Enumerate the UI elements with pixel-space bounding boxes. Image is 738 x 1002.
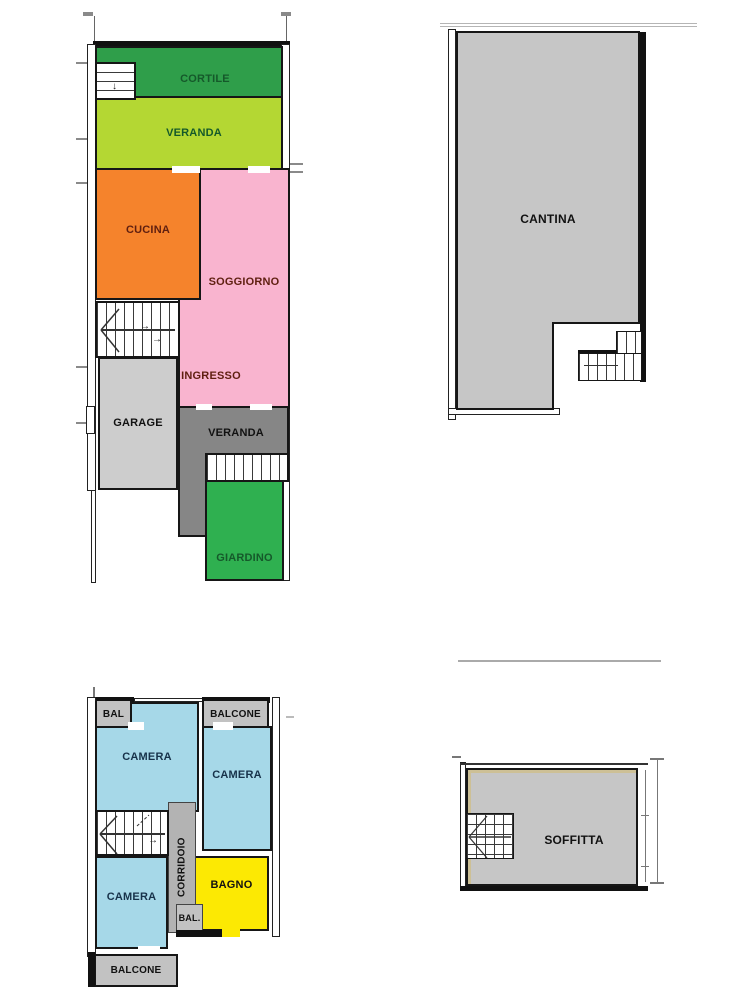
stairs-arrow-right: → (148, 836, 158, 846)
door-opening (213, 722, 233, 730)
dimension-bracket-end (650, 882, 664, 884)
room-cantina-lower (456, 322, 554, 410)
room-label-balcone-bottom: BALCONE (94, 963, 178, 977)
exterior-wall (272, 697, 280, 937)
room-label-camera-sw: CAMERA (95, 890, 168, 904)
room-cantina (456, 31, 640, 324)
dimension-line (458, 660, 661, 662)
room-label-veranda-back: VERANDA (188, 426, 284, 440)
dimension-line (440, 23, 697, 24)
dimension-line (440, 26, 697, 27)
dimension-tick (83, 12, 93, 16)
roof-edge-accent (468, 770, 636, 773)
room-label-giardino: GIARDINO (205, 551, 284, 565)
room-bagno (194, 856, 269, 931)
door-opening (250, 404, 272, 410)
exterior-wall (460, 763, 648, 765)
attic-plan: SOFFITTA (430, 640, 738, 940)
door-opening-bagno (222, 929, 240, 937)
room-label-cucina: CUCINA (98, 222, 198, 237)
dimension-tick (286, 716, 294, 718)
dimension-line (286, 16, 287, 42)
exterior-wall (448, 29, 456, 420)
room-label-balcone-top: BALCONE (202, 707, 269, 721)
dimension-tick (290, 163, 303, 165)
dimension-line (94, 16, 95, 42)
dimension-tick (452, 756, 461, 758)
basement-stairs (578, 353, 642, 381)
dimension-line (93, 687, 95, 697)
room-label-camera-ne: CAMERA (202, 768, 272, 782)
garage-door-mark (86, 406, 95, 434)
room-label-garage: GARAGE (98, 415, 178, 430)
door-opening (128, 722, 144, 730)
room-label-cortile: CORTILE (150, 72, 260, 86)
room-label-veranda-front: VERANDA (139, 126, 249, 140)
room-label-corridoio: CORRIDOIO (168, 810, 196, 925)
room-label-soggiorno: SOGGIORNO (196, 274, 292, 289)
room-label-bagno: BAGNO (194, 878, 269, 892)
attic-stairs (466, 813, 514, 859)
staircase-mid (95, 301, 180, 358)
ground-floor-plan: CORTILE ↓ VERANDA SOGGIORNO INGRESSO CUC… (0, 0, 320, 600)
dimension-tick (290, 171, 303, 173)
room-label-cantina: CANTINA (456, 210, 640, 228)
dimension-bracket-end (650, 758, 664, 760)
stairs-arrow-line (584, 365, 618, 366)
room-label-bal-small: BAL. (176, 912, 203, 924)
cantina-seam-patch (458, 316, 552, 328)
dimension-tick (641, 815, 649, 816)
parapet-wall (176, 930, 222, 937)
exterior-wall (460, 886, 648, 891)
stairs-arrow-right: → (152, 335, 162, 345)
basement-plan: CANTINA (430, 0, 738, 440)
door-opening (172, 166, 200, 173)
room-label-camera-nw: CAMERA (95, 750, 199, 764)
room-label-soffitta: SOFFITTA (510, 832, 638, 847)
stairs-arrow-down: ↓ (112, 82, 117, 92)
first-floor-plan: CAMERA BAL BALCONE CAMERA CORRIDOIO → CA… (0, 660, 320, 1002)
exterior-wall (640, 32, 646, 382)
door-opening (138, 946, 160, 954)
floorplan-canvas: CORTILE ↓ VERANDA SOGGIORNO INGRESSO CUC… (0, 0, 738, 1002)
room-label-ingresso: INGRESSO (158, 368, 264, 383)
dimension-bracket (657, 759, 658, 884)
garden-fence-wall (91, 490, 96, 583)
stairs-diagonals (467, 814, 515, 860)
stairs-to-giardino (205, 453, 289, 482)
stairs-diagonals (97, 812, 171, 858)
room-giardino (205, 480, 284, 581)
first-floor-stairs (95, 810, 169, 856)
veranda-back-side (178, 453, 207, 537)
room-camera-ne (202, 726, 272, 851)
door-opening (196, 404, 212, 410)
dimension-tick (641, 866, 649, 867)
door-opening (248, 166, 270, 173)
room-label-bal-left: BAL (95, 707, 132, 721)
stairs-arrow-right: → (140, 322, 150, 332)
